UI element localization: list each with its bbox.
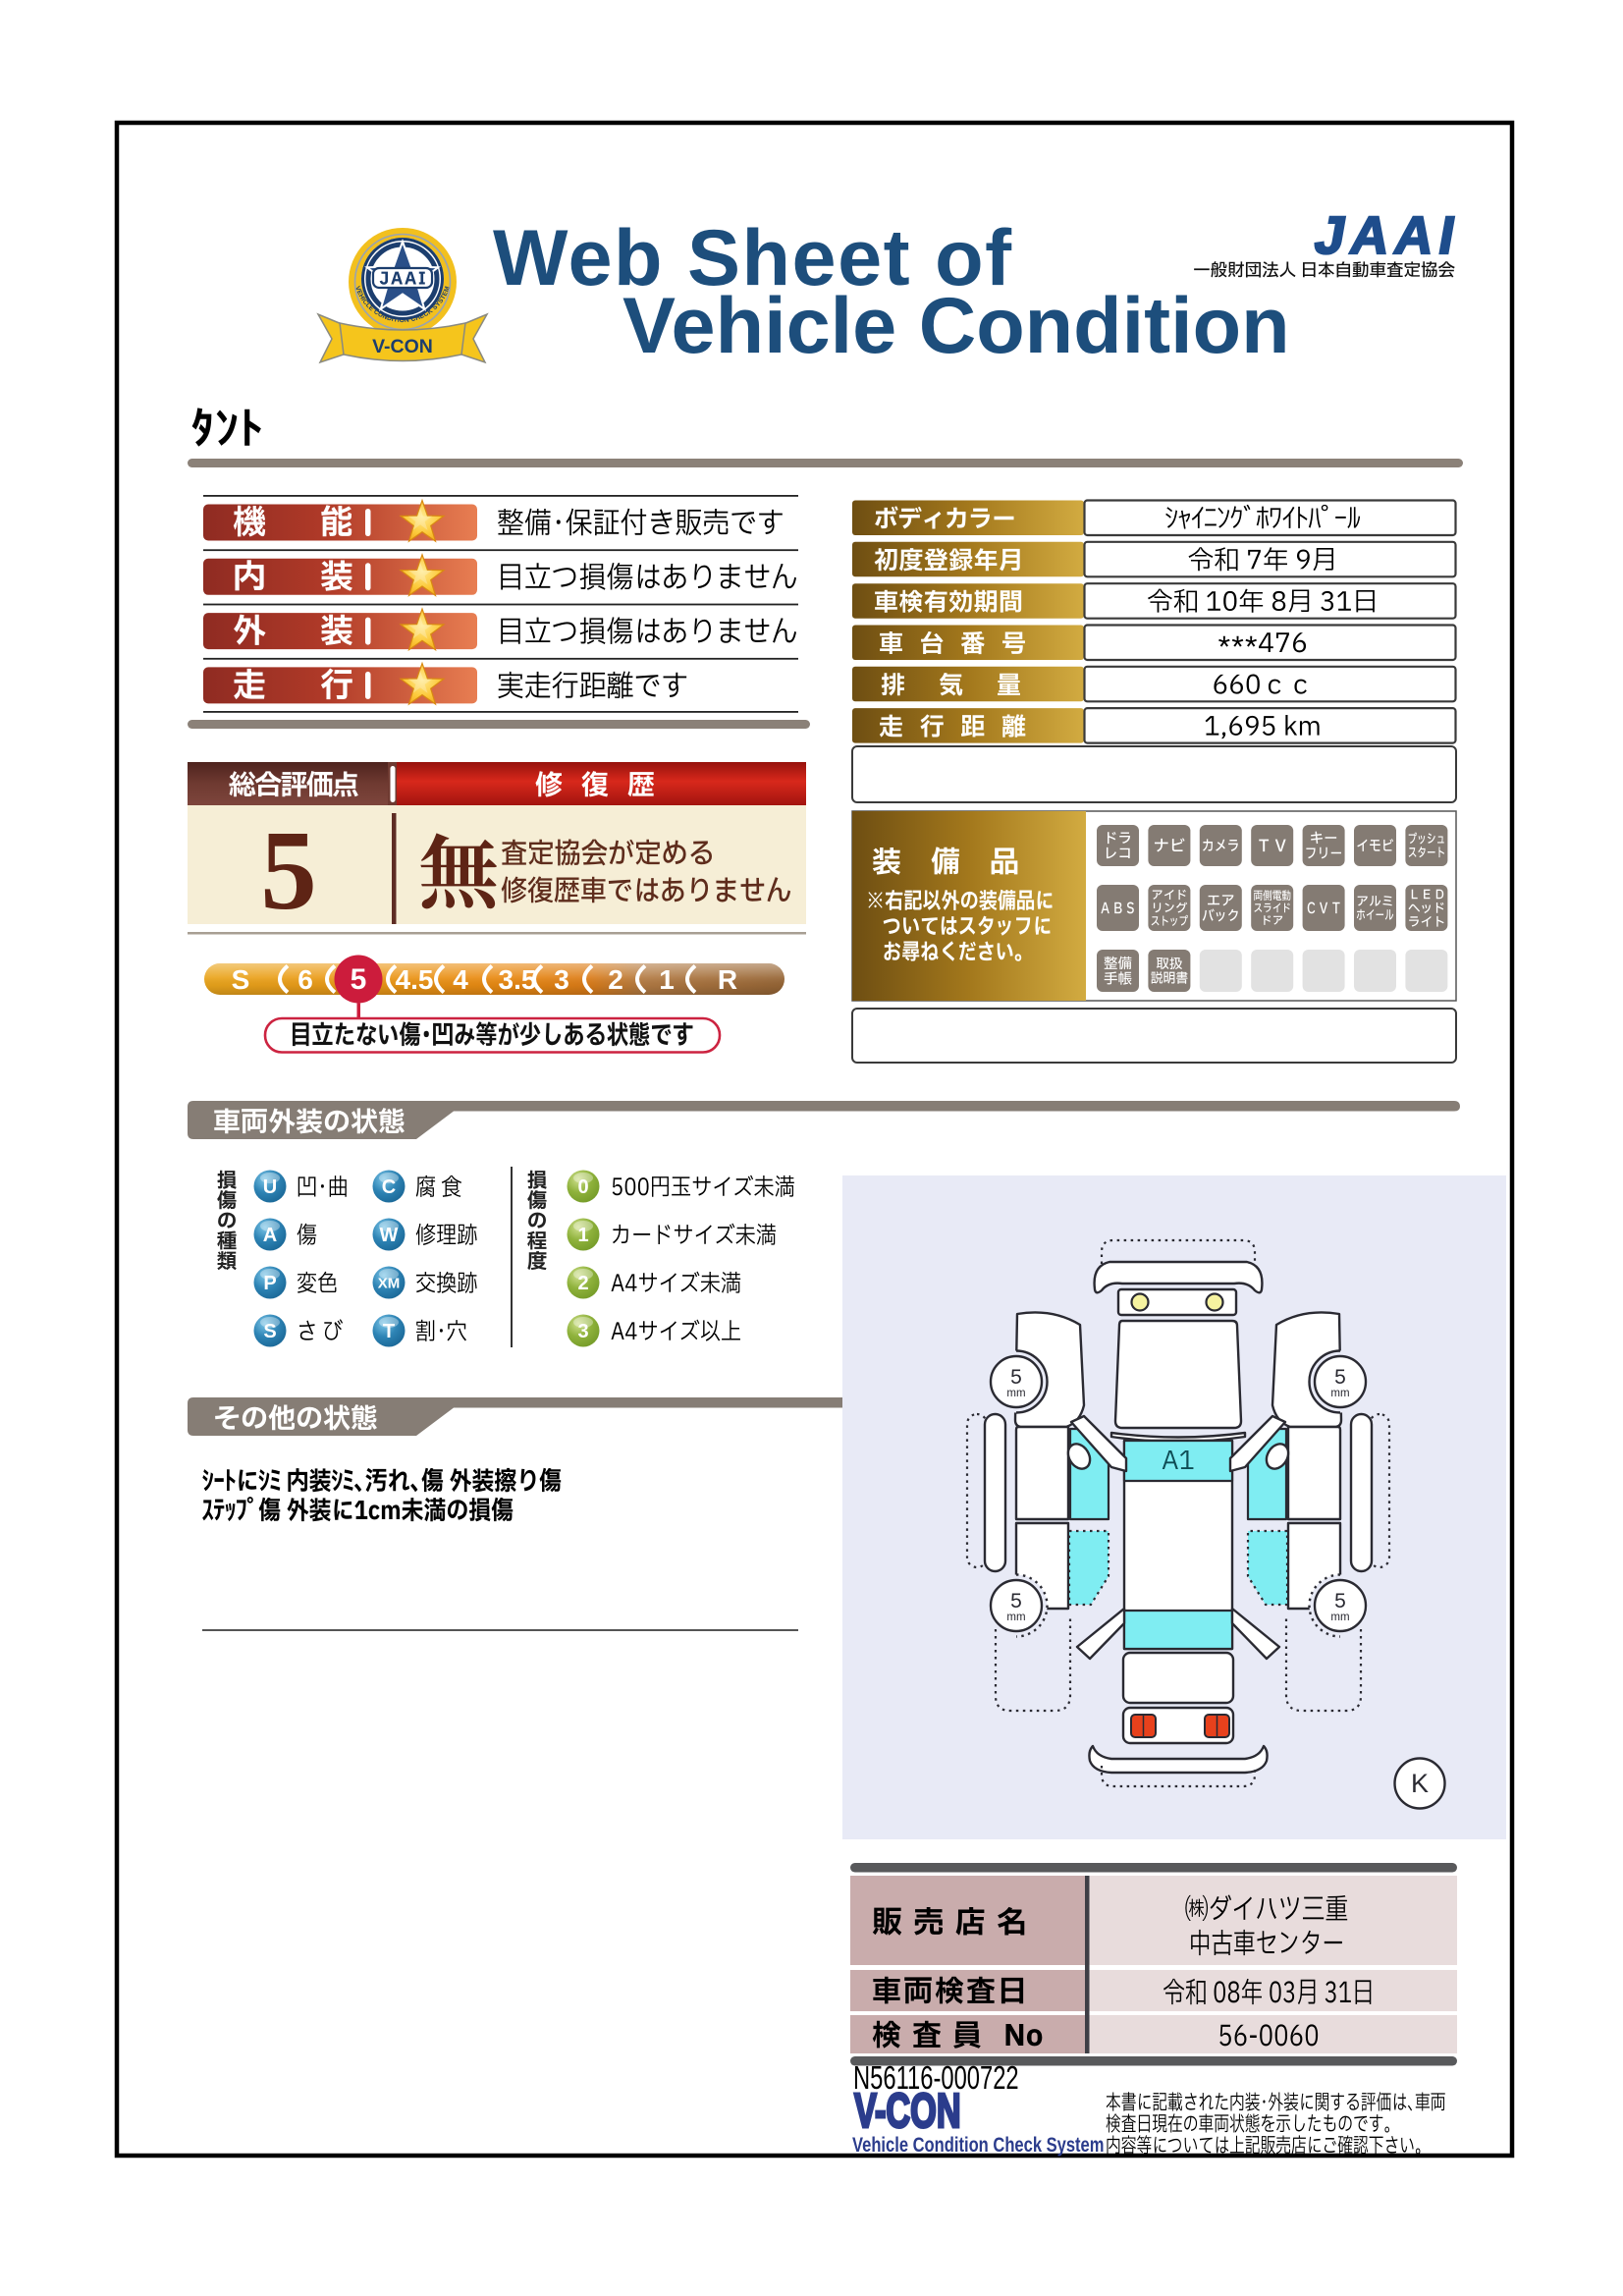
svg-text:5: 5	[1334, 1366, 1346, 1389]
svg-text:1: 1	[577, 1225, 588, 1246]
svg-text:5: 5	[1010, 1590, 1022, 1613]
svg-text:0: 0	[577, 1176, 588, 1198]
svg-text:5: 5	[1010, 1366, 1022, 1389]
svg-text:mm: mm	[1330, 1612, 1349, 1623]
svg-text:K: K	[1411, 1769, 1429, 1798]
svg-text:U: U	[263, 1176, 277, 1198]
svg-text:V-CON: V-CON	[372, 336, 433, 357]
svg-text:T: T	[383, 1321, 395, 1342]
svg-text:mm: mm	[1006, 1612, 1025, 1623]
svg-text:XM: XM	[378, 1275, 401, 1291]
svg-text:S: S	[263, 1321, 276, 1342]
svg-text:5: 5	[260, 808, 317, 933]
svg-text:Vehicle Condition: Vehicle Condition	[622, 282, 1290, 370]
svg-text:C: C	[382, 1176, 396, 1198]
svg-text:A: A	[263, 1225, 277, 1246]
svg-text:mm: mm	[1006, 1388, 1025, 1399]
svg-text:P: P	[263, 1273, 276, 1294]
svg-text:W: W	[380, 1225, 399, 1246]
svg-text:5: 5	[351, 963, 367, 996]
svg-text:5: 5	[1334, 1590, 1346, 1613]
svg-text:V-CON: V-CON	[854, 2084, 961, 2137]
svg-text:JAAI: JAAI	[1311, 205, 1466, 265]
svg-text:3: 3	[577, 1321, 588, 1342]
svg-text:2: 2	[577, 1273, 588, 1294]
svg-text:mm: mm	[1330, 1388, 1349, 1399]
svg-text:Vehicle Condition Check System: Vehicle Condition Check System	[852, 2134, 1104, 2158]
